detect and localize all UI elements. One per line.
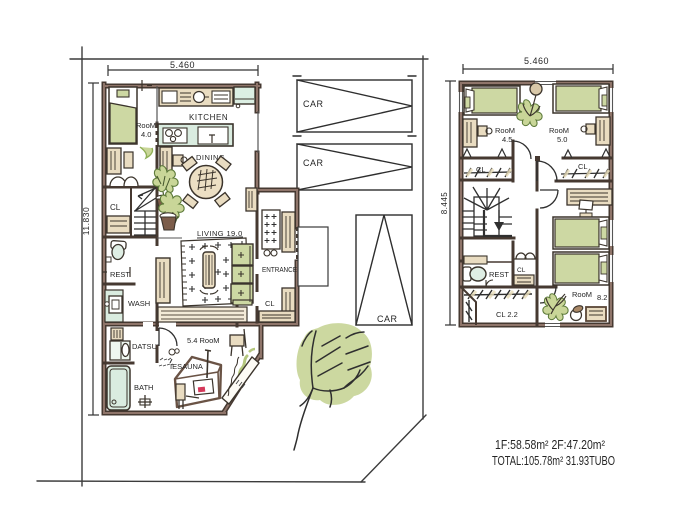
svg-text:8.2: 8.2: [597, 293, 607, 302]
svg-text:4.5: 4.5: [502, 135, 512, 144]
svg-text:5.460: 5.460: [170, 60, 195, 70]
svg-text:REST: REST: [110, 270, 130, 279]
svg-text:5.460: 5.460: [524, 56, 549, 66]
svg-text:5.0: 5.0: [557, 135, 567, 144]
svg-text:1F:58.58m² 2F:47.20m²: 1F:58.58m² 2F:47.20m²: [495, 437, 606, 452]
svg-text:LIVING 19.0: LIVING 19.0: [197, 229, 243, 238]
svg-text:KITCHEN: KITCHEN: [189, 113, 228, 122]
svg-text:RooM: RooM: [136, 121, 156, 130]
svg-text:DATSUI: DATSUI: [132, 342, 159, 351]
svg-text:BATH: BATH: [134, 383, 153, 392]
svg-text:CAR: CAR: [377, 314, 398, 324]
svg-text:CL: CL: [265, 299, 275, 308]
svg-text:CAR: CAR: [303, 158, 324, 168]
svg-text:REST: REST: [489, 270, 509, 279]
svg-text:RooM: RooM: [572, 290, 592, 299]
svg-text:CL: CL: [517, 267, 526, 274]
svg-text:CAR: CAR: [303, 99, 324, 109]
svg-text:RooM: RooM: [549, 126, 569, 135]
svg-text:TOTAL:105.78m² 31.93TUBO: TOTAL:105.78m² 31.93TUBO: [492, 453, 615, 468]
svg-text:CL: CL: [578, 162, 588, 171]
svg-text:CL 2.2: CL 2.2: [496, 310, 518, 319]
svg-text:8.445: 8.445: [440, 192, 449, 215]
svg-text:RooM: RooM: [495, 126, 515, 135]
svg-text:CL: CL: [110, 203, 121, 212]
svg-text:11.830: 11.830: [81, 207, 91, 235]
svg-text:ENTRANCE: ENTRANCE: [262, 267, 297, 274]
svg-text:4.0: 4.0: [141, 130, 151, 139]
svg-text:IESAUNA: IESAUNA: [170, 362, 203, 371]
svg-text:WASH: WASH: [128, 299, 150, 308]
svg-text:5.4 RooM: 5.4 RooM: [187, 336, 220, 345]
